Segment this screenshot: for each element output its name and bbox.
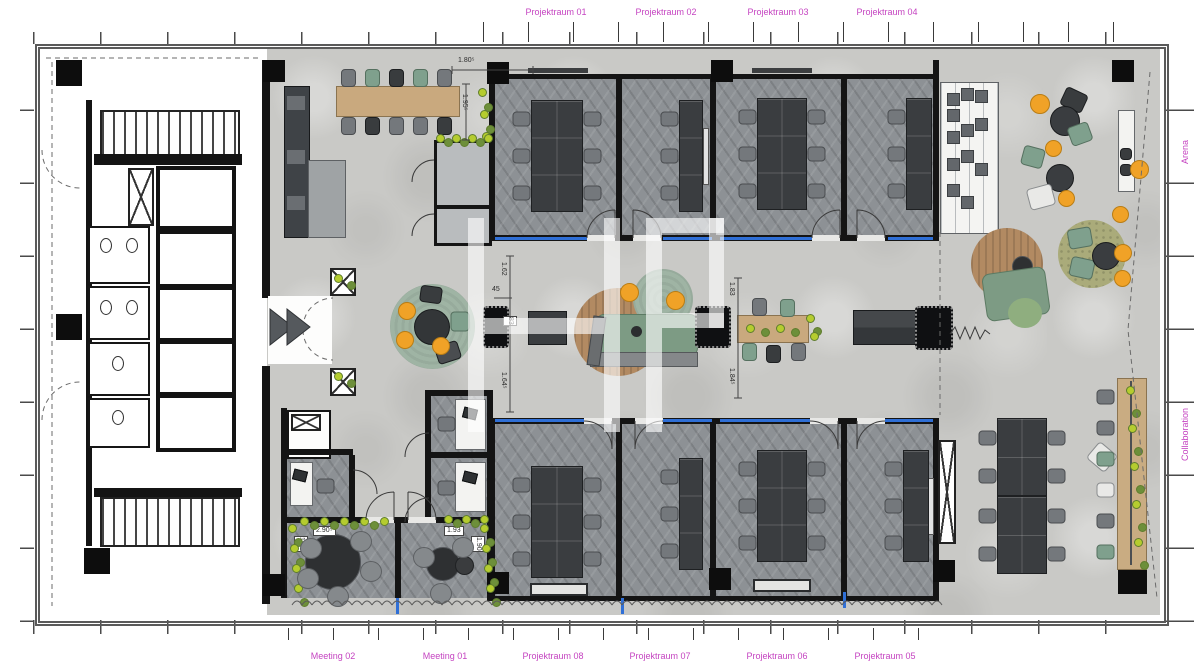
- entry-door-dashed: [303, 298, 333, 328]
- door-swing: [405, 433, 429, 457]
- dim-line: [734, 278, 742, 398]
- watermark-letter-h: [484, 318, 604, 334]
- dim-line: [452, 66, 533, 74]
- door-swing: [405, 498, 429, 522]
- door-swing: [857, 421, 885, 449]
- door-swing: [408, 492, 436, 520]
- entry-door-dashed: [303, 330, 333, 360]
- door-swing: [353, 470, 377, 494]
- dashed-diagonal-right: [1128, 72, 1157, 598]
- linework-overlay: [0, 0, 1200, 669]
- watermark-letter-p: [709, 218, 724, 328]
- dim-line: [462, 84, 470, 140]
- dim-line: [506, 256, 514, 412]
- entry-arrows-icon: [270, 309, 310, 345]
- door-swing: [412, 214, 434, 236]
- watermark-letter-h: [468, 218, 484, 432]
- convector-scallop-line: [292, 601, 942, 605]
- door-swing: [812, 210, 840, 238]
- watermark-letter-p: [662, 313, 724, 328]
- watermark-letter-p: [646, 218, 662, 432]
- door-swing: [810, 421, 838, 449]
- watermark-letter-h: [604, 218, 620, 432]
- door-swing: [412, 160, 434, 182]
- facade-door-dashed: [42, 150, 80, 188]
- facade-door-dashed: [42, 382, 80, 420]
- door-swing: [366, 492, 394, 520]
- zigzag-symbol: [950, 327, 990, 339]
- door-swing: [857, 210, 885, 238]
- floor-plan: 2.90⁵ 1.90 1.93 1.90 1.62 45 83 1.64⁵ 1.…: [0, 0, 1200, 669]
